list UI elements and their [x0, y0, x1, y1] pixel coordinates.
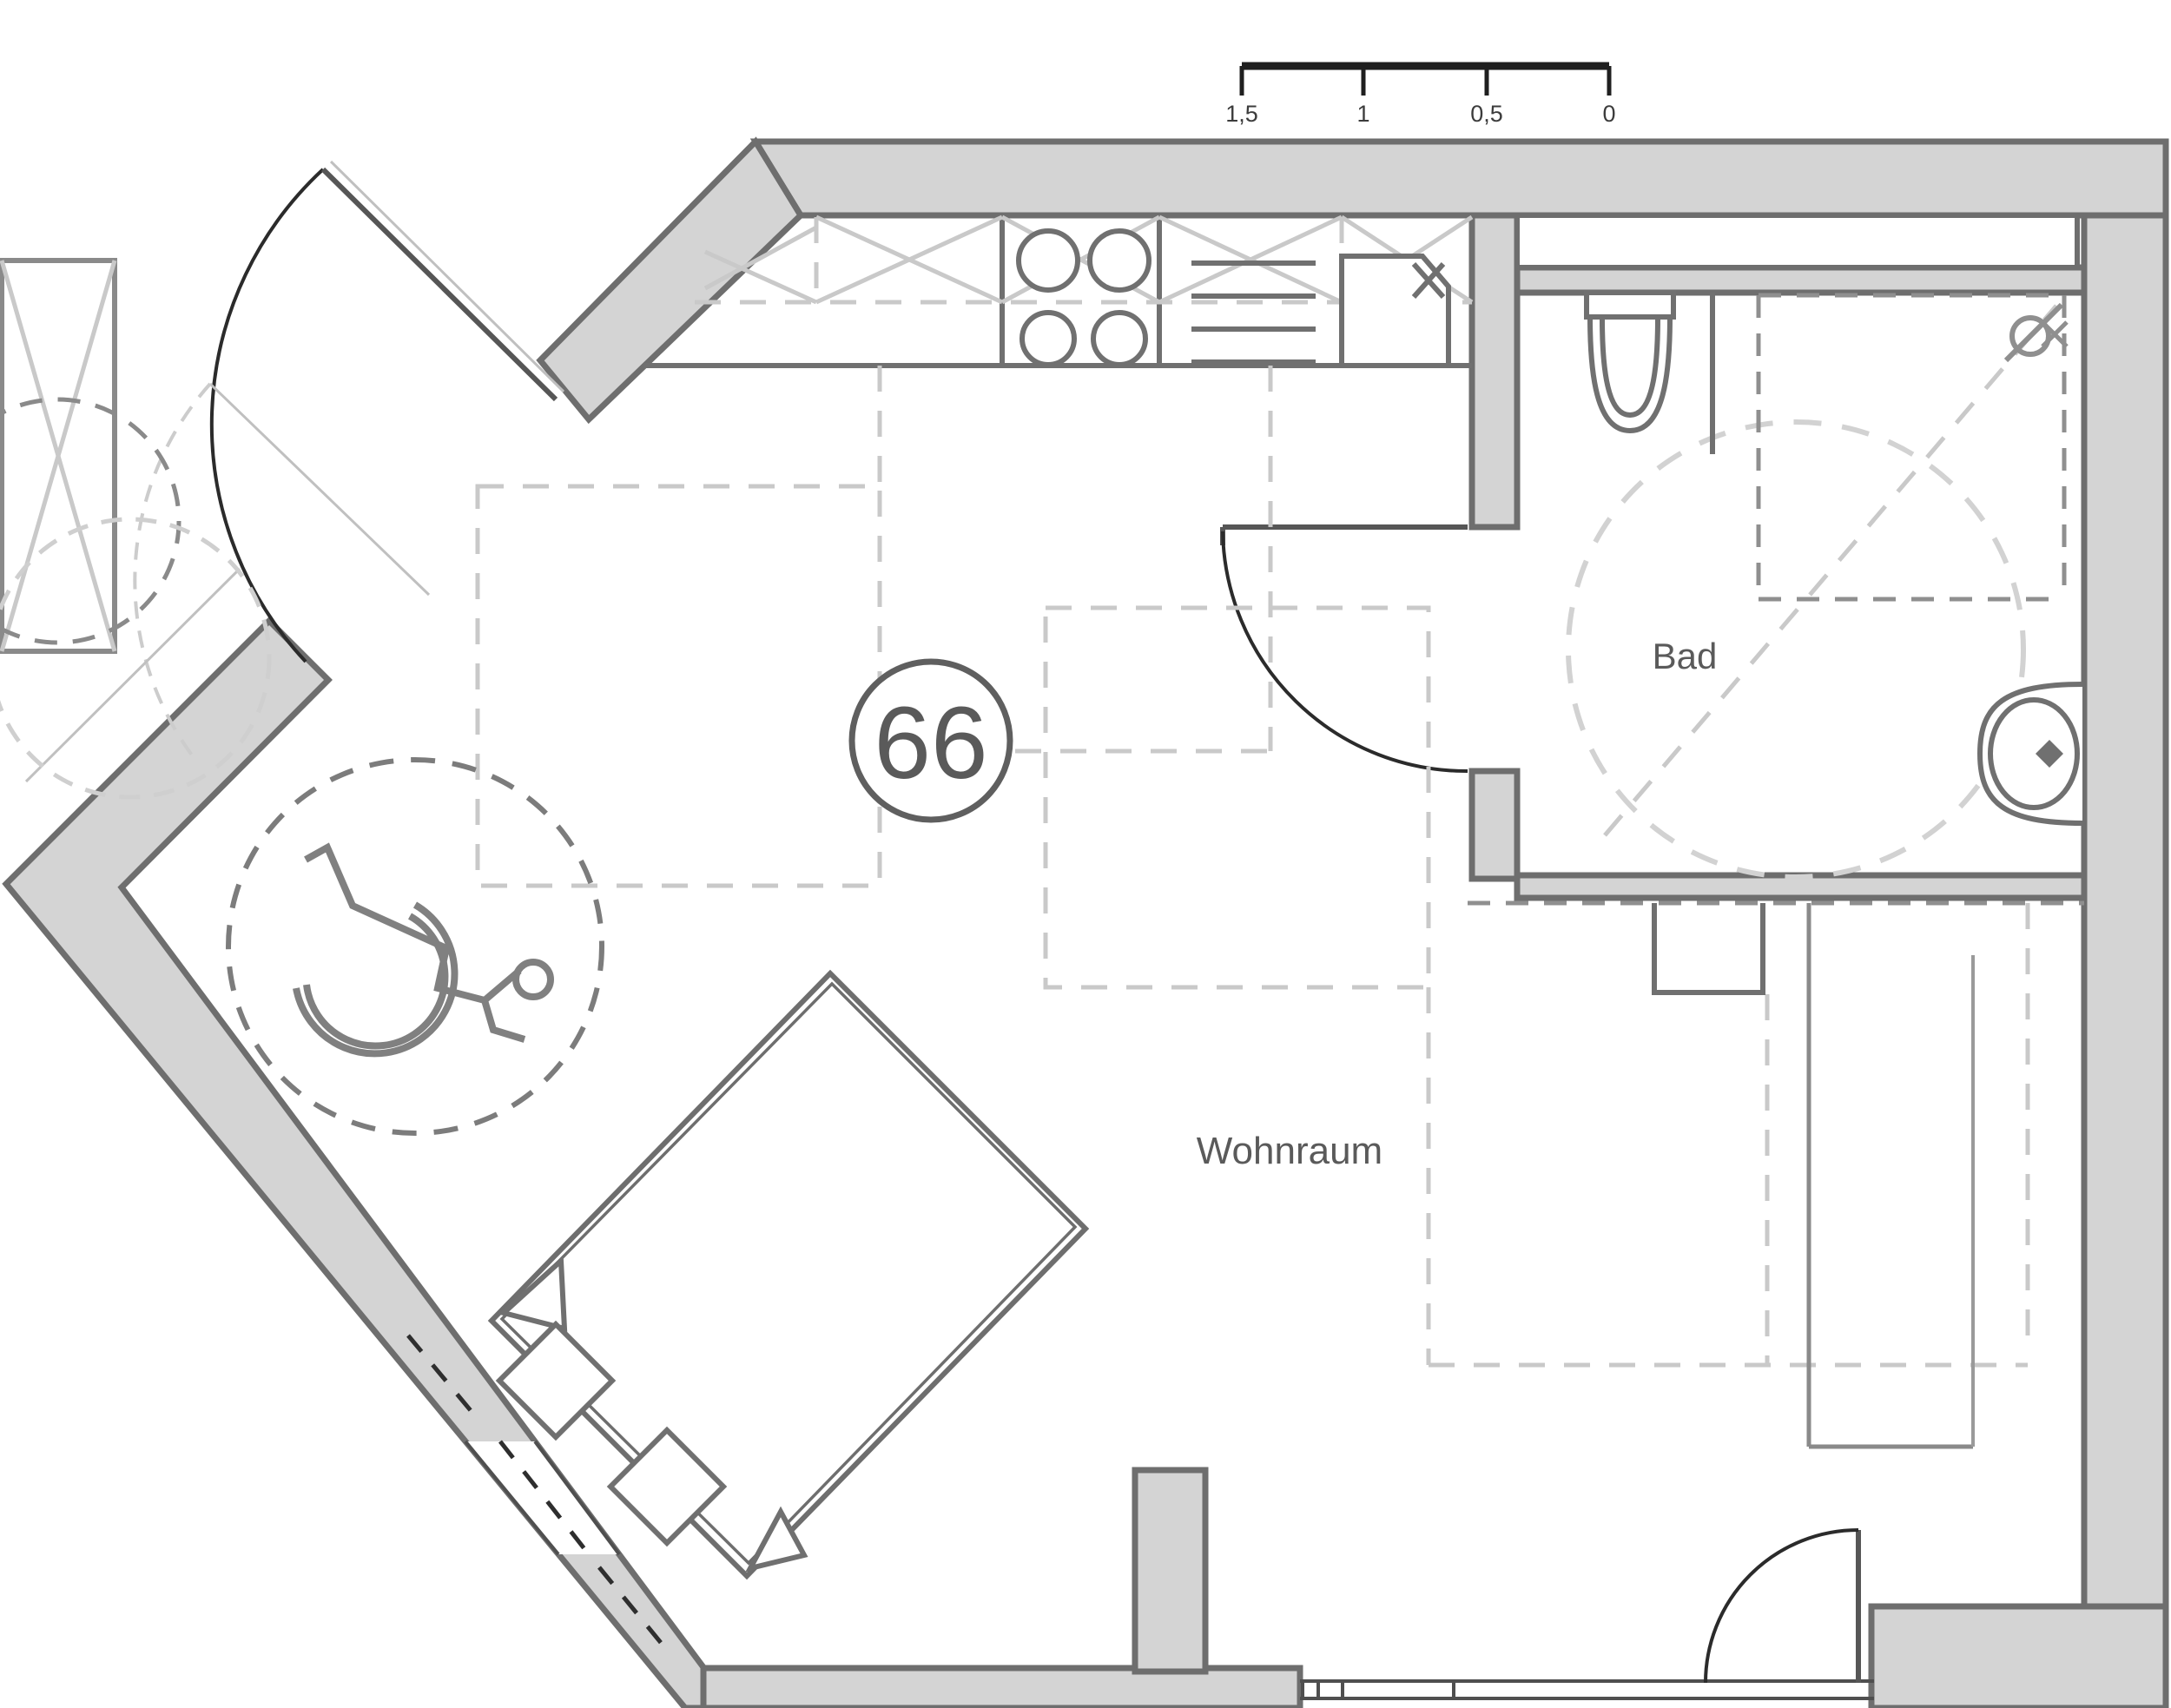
- floor-plan-drawing: 1,5 1 0,5 0: [0, 0, 2171, 1708]
- shower-head-icon: [2006, 305, 2067, 360]
- floor-plan-page: 1,5 1 0,5 0: [0, 0, 2171, 1708]
- unit-number: 66: [874, 686, 987, 801]
- entrance-door-swing-arc: [212, 169, 323, 662]
- wall-diagonal-southwest: [6, 621, 734, 1708]
- turning-circle-living: [228, 760, 602, 1133]
- walls: [6, 142, 2166, 1708]
- wall-pier: [1135, 1470, 1205, 1672]
- cooktop-icon: [1019, 231, 1149, 365]
- room-label-wohnraum: Wohnraum: [1197, 1130, 1382, 1172]
- furniture-zone-1: [478, 486, 880, 886]
- washbasin-icon: [1980, 684, 2082, 823]
- bed: [492, 973, 1085, 1576]
- wall-bottom-center: [703, 1668, 1300, 1708]
- shower-enclosure-dashed: [1759, 295, 2064, 599]
- bathroom: Bad: [1468, 293, 2084, 903]
- wheelchair-icon: [228, 760, 602, 1133]
- balcony-door-swing-arc: [1706, 1530, 1858, 1683]
- duct-shaft-niche: [1517, 215, 2077, 267]
- scale-label-1: 1: [1356, 101, 1369, 127]
- living-room: 66 Wohnraum: [228, 662, 1382, 1576]
- scale-label-0: 0: [1602, 101, 1615, 127]
- toilet-icon: [1587, 293, 1673, 431]
- wall-kitchen-bath-partition: [1472, 215, 1517, 527]
- sink-icon: [1342, 256, 1448, 366]
- wall-bottom-right: [1871, 1606, 2166, 1708]
- scale-bar: 1,5 1 0,5 0: [1225, 66, 1615, 127]
- window-band-bottom: [1300, 1681, 1874, 1698]
- wall-diagonal-upper: [540, 142, 801, 419]
- window-end-detail: [1303, 1681, 1318, 1698]
- scale-label-1-5: 1,5: [1225, 101, 1258, 127]
- entrance-door-leaf: [323, 169, 556, 399]
- radiator-box: [1654, 903, 1763, 992]
- scale-label-0-5: 0,5: [1470, 101, 1503, 127]
- balcony-door: [1706, 1530, 1858, 1683]
- furniture-zone-2: [1046, 608, 1429, 987]
- bathroom-door: [1223, 527, 1468, 771]
- wall-top: [756, 142, 2166, 215]
- turning-circle-bath: [1568, 422, 2023, 877]
- wall-bath-door-stub: [1472, 771, 1517, 879]
- wall-bath-top-inner: [1517, 267, 2084, 293]
- bathroom-door-swing-arc: [1223, 531, 1468, 771]
- corridor-door-leaf: [210, 384, 429, 595]
- room-label-bad: Bad: [1653, 636, 1718, 676]
- wall-right: [2084, 215, 2166, 1708]
- scale-bar-ticks: [1242, 66, 1609, 96]
